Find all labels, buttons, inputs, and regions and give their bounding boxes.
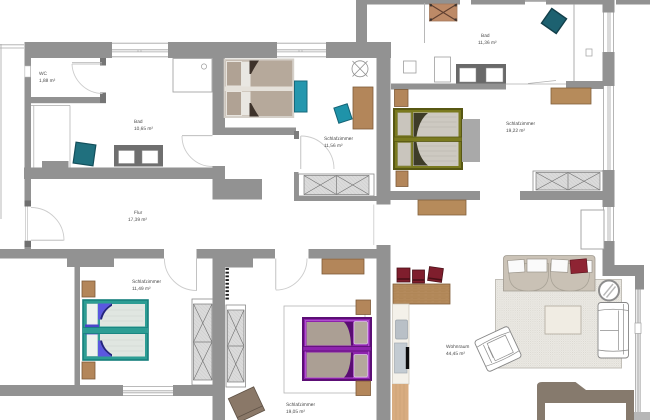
svg-text:19,22 m²: 19,22 m² bbox=[506, 128, 525, 134]
svg-text:Schlafzimmer: Schlafzimmer bbox=[132, 279, 161, 285]
svg-text:11,56 m²: 11,56 m² bbox=[324, 143, 343, 149]
svg-text:44,45 m²: 44,45 m² bbox=[446, 351, 465, 357]
svg-text:Bad: Bad bbox=[134, 119, 143, 125]
svg-text:Flur: Flur bbox=[134, 210, 143, 216]
svg-text:Schlafzimmer: Schlafzimmer bbox=[324, 136, 353, 142]
svg-text:11,36 m²: 11,36 m² bbox=[478, 40, 497, 46]
svg-text:19,05 m²: 19,05 m² bbox=[286, 409, 305, 415]
svg-text:11,49 m²: 11,49 m² bbox=[132, 286, 151, 292]
svg-text:Bad: Bad bbox=[481, 33, 490, 39]
svg-text:17,39 m²: 17,39 m² bbox=[128, 217, 147, 223]
svg-text:Schlafzimmer: Schlafzimmer bbox=[506, 121, 535, 127]
svg-text:WC: WC bbox=[39, 71, 48, 77]
svg-text:1,88 m²: 1,88 m² bbox=[39, 78, 56, 84]
svg-text:Schlafzimmer: Schlafzimmer bbox=[286, 402, 315, 408]
svg-text:10,65 m²: 10,65 m² bbox=[134, 126, 153, 132]
svg-text:Wohnraum: Wohnraum bbox=[446, 344, 469, 350]
